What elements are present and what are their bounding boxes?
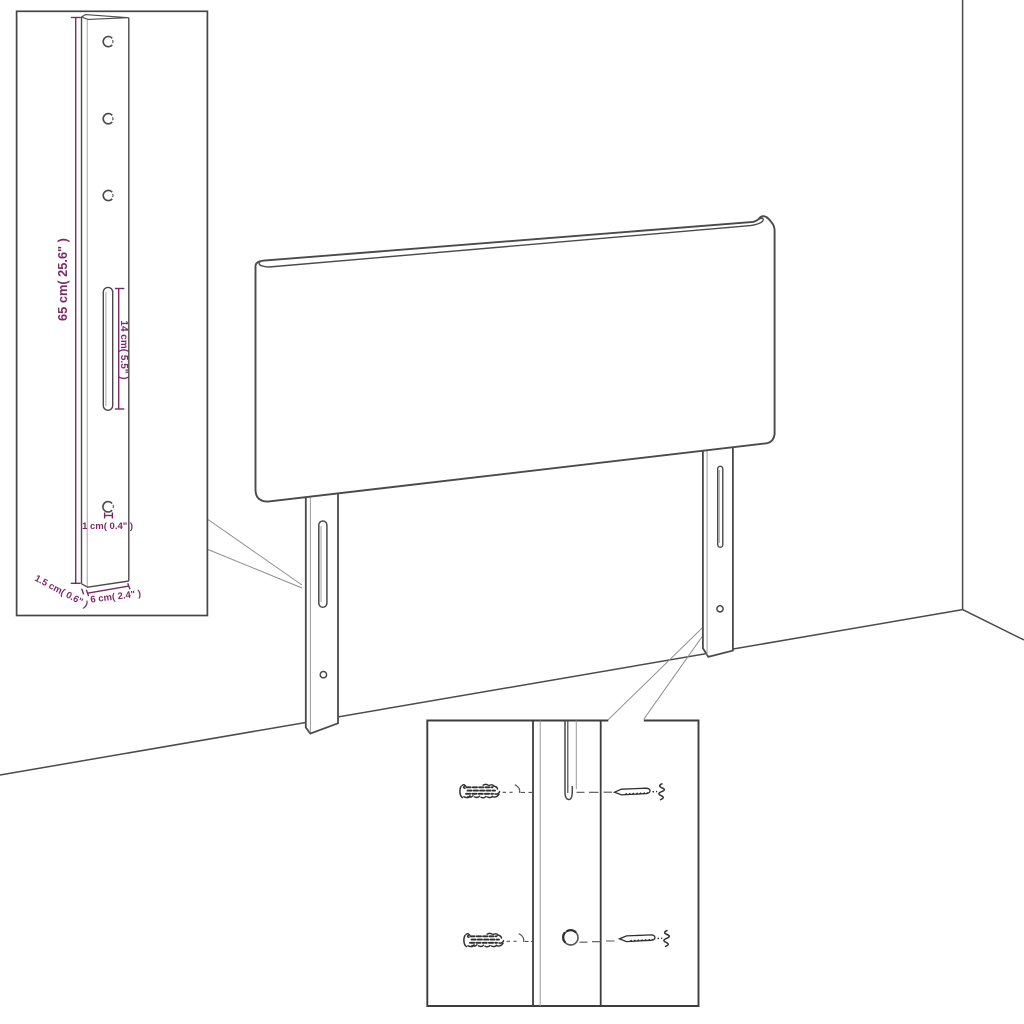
svg-text:14 cm( 5.5" ): 14 cm( 5.5" )	[118, 320, 129, 379]
svg-text:65 cm( 25.6" ): 65 cm( 25.6" )	[55, 238, 70, 321]
svg-text:1 cm( 0.4" ): 1 cm( 0.4" )	[82, 521, 133, 532]
